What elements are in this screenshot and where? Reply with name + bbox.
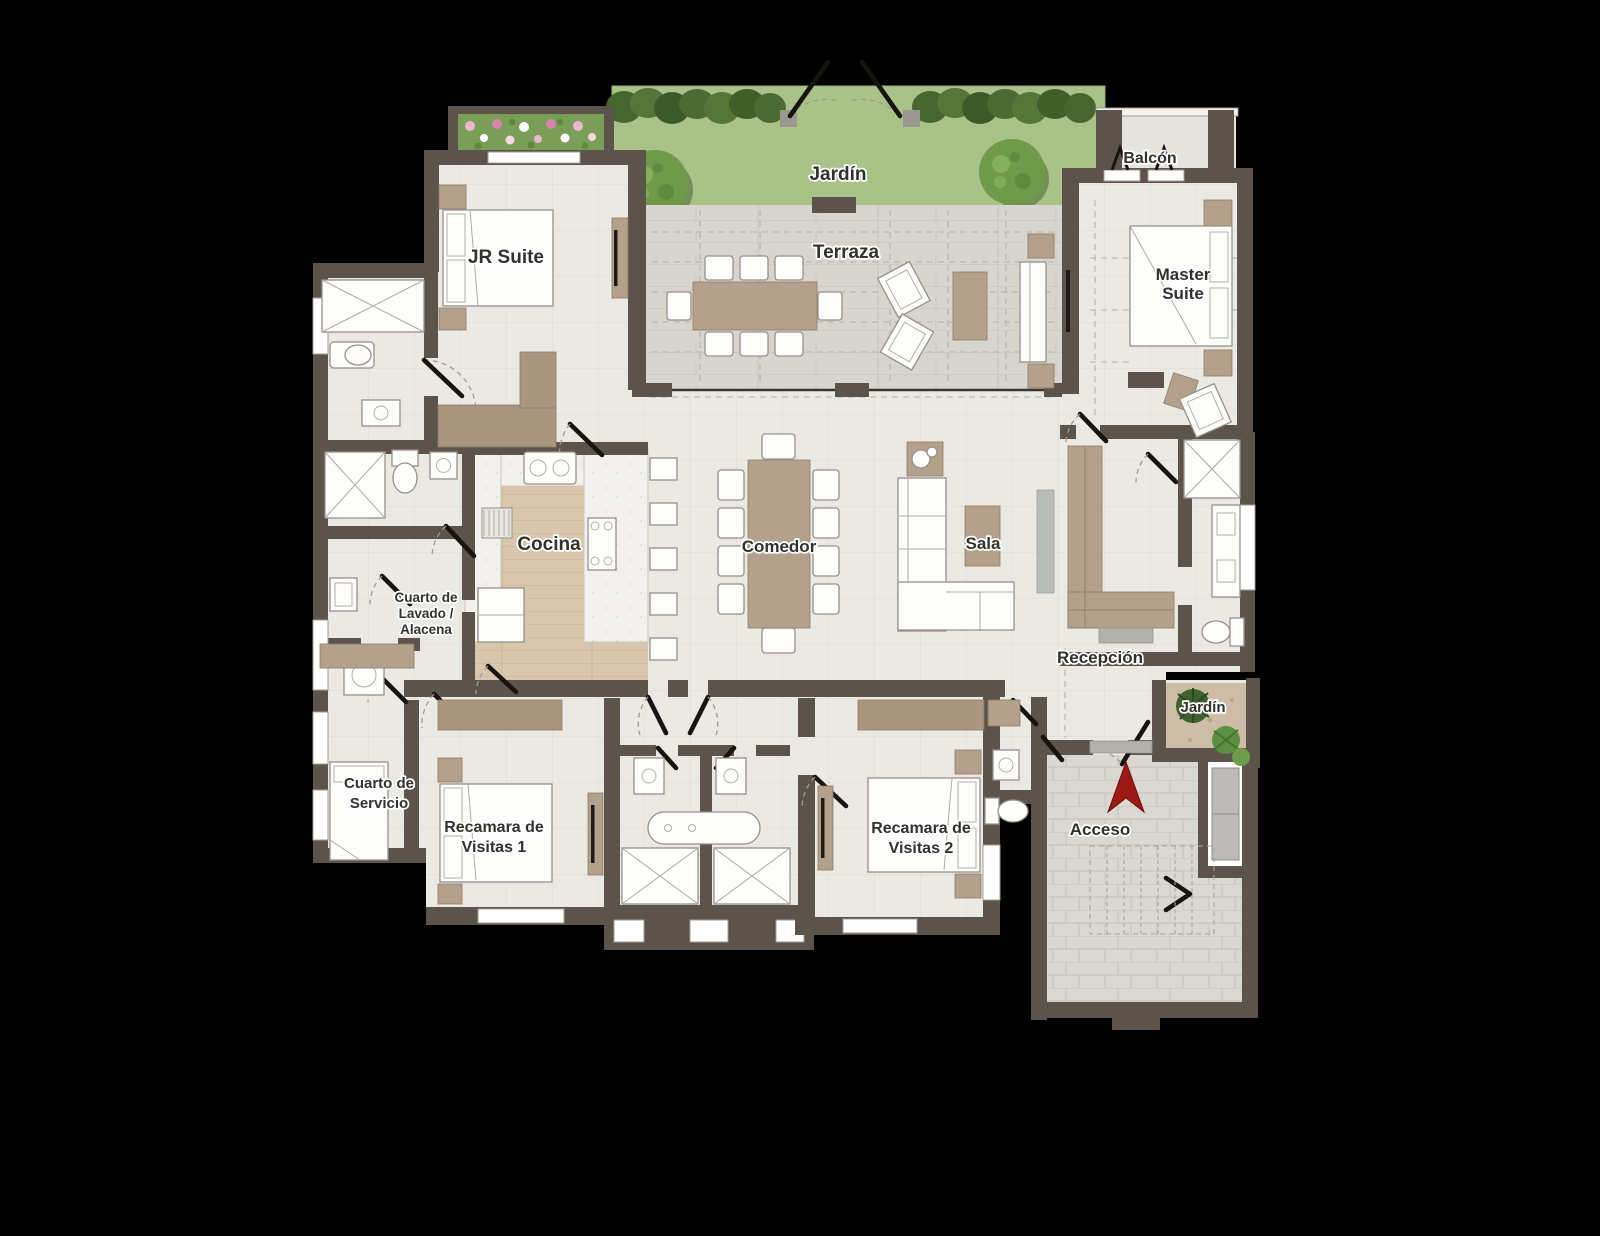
label-terraza: Terraza bbox=[813, 242, 880, 263]
floor-plan: Jardín Terraza Balcón JR Suite Master Su… bbox=[0, 0, 1600, 1236]
floor-plan-canvas: Jardín Terraza Balcón JR Suite Master Su… bbox=[0, 0, 1600, 1236]
label-comedor: Comedor bbox=[742, 537, 817, 556]
label-master-2: Suite bbox=[1162, 284, 1204, 303]
label-lavado-1: Cuarto de bbox=[394, 590, 457, 605]
terraza-coffee-table bbox=[953, 272, 987, 340]
label-jr-suite: JR Suite bbox=[468, 247, 544, 268]
terraza-sofa bbox=[1020, 262, 1046, 362]
label-jardin-top: Jardín bbox=[809, 164, 866, 185]
label-recamara1-1: Recamara de bbox=[444, 819, 544, 836]
master-vanity bbox=[1212, 505, 1240, 597]
label-lavado-2: Lavado / bbox=[399, 606, 454, 621]
label-balcon: Balcón bbox=[1123, 150, 1176, 167]
kitchen-floor bbox=[465, 450, 648, 696]
terraza-table bbox=[693, 282, 817, 330]
label-recamara2-1: Recamara de bbox=[871, 820, 971, 837]
label-cocina: Cocina bbox=[517, 534, 581, 555]
label-sala: Sala bbox=[966, 534, 1002, 553]
label-jardin-small: Jardín bbox=[1180, 699, 1225, 716]
label-master-1: Master bbox=[1156, 265, 1211, 284]
label-recamara2-2: Visitas 2 bbox=[889, 840, 954, 857]
label-acceso: Acceso bbox=[1070, 820, 1130, 839]
label-recepcion: Recepción bbox=[1057, 648, 1143, 667]
label-servicio-1: Cuarto de bbox=[344, 775, 414, 792]
label-servicio-2: Servicio bbox=[350, 795, 408, 812]
kitchen-sink bbox=[524, 452, 576, 484]
label-lavado-3: Alacena bbox=[400, 622, 452, 637]
label-recamara1-2: Visitas 1 bbox=[462, 839, 527, 856]
